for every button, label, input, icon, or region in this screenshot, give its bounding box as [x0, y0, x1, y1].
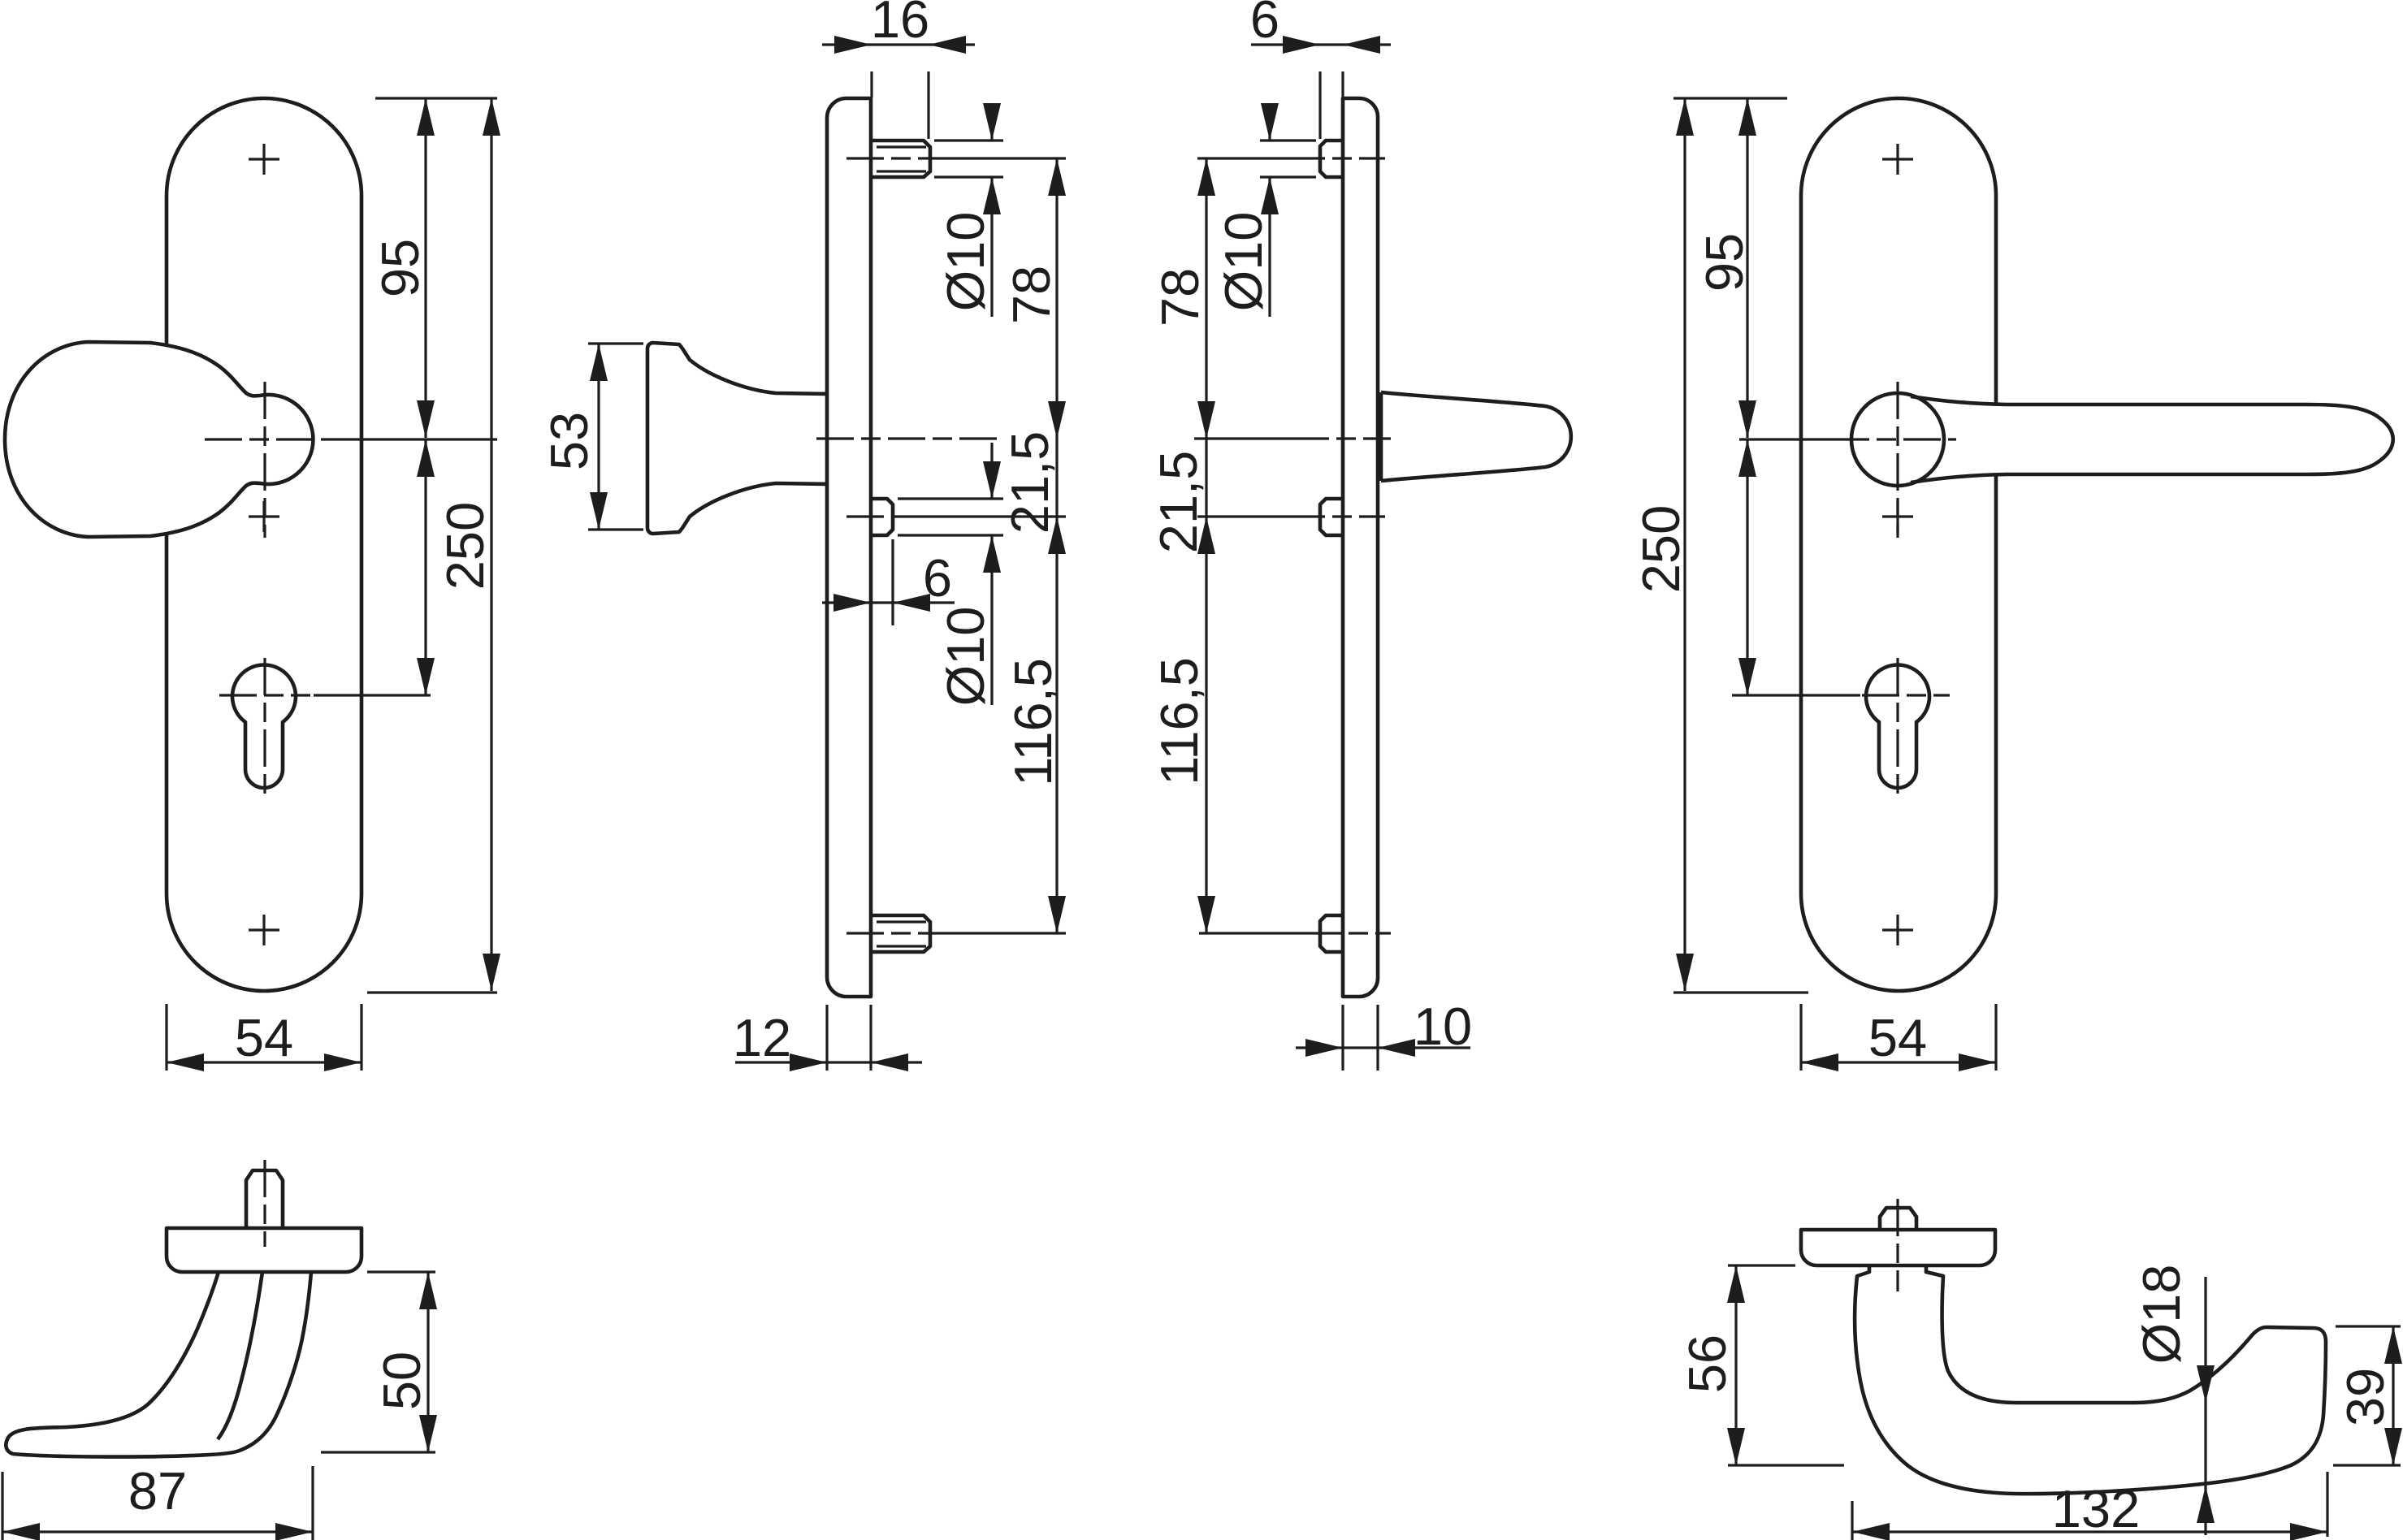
svg-text:6: 6 — [923, 548, 952, 608]
svg-text:Ø10: Ø10 — [1214, 212, 1273, 312]
svg-text:6: 6 — [1250, 0, 1279, 49]
svg-text:54: 54 — [1868, 1008, 1927, 1067]
svg-text:Ø10: Ø10 — [936, 607, 995, 707]
svg-text:95: 95 — [370, 239, 430, 297]
svg-text:12: 12 — [733, 1008, 791, 1067]
svg-text:95: 95 — [1695, 233, 1754, 292]
svg-text:78: 78 — [1002, 266, 1061, 324]
svg-text:56: 56 — [1678, 1335, 1737, 1393]
svg-text:10: 10 — [1414, 997, 1472, 1056]
svg-text:53: 53 — [539, 412, 599, 470]
svg-text:16: 16 — [871, 0, 929, 49]
svg-text:116,5: 116,5 — [1150, 657, 1209, 785]
svg-text:250: 250 — [1631, 505, 1691, 593]
svg-text:Ø18: Ø18 — [2132, 1265, 2191, 1365]
svg-text:116,5: 116,5 — [1003, 658, 1063, 786]
svg-text:21,5: 21,5 — [1149, 451, 1208, 554]
svg-text:50: 50 — [372, 1352, 431, 1410]
svg-text:21,5: 21,5 — [1000, 431, 1059, 534]
svg-text:87: 87 — [128, 1461, 187, 1521]
svg-text:39: 39 — [2336, 1368, 2395, 1426]
svg-text:54: 54 — [235, 1008, 293, 1067]
svg-text:78: 78 — [1150, 268, 1210, 327]
svg-text:Ø10: Ø10 — [936, 212, 995, 312]
svg-text:132: 132 — [2052, 1479, 2140, 1538]
svg-text:250: 250 — [435, 502, 495, 590]
